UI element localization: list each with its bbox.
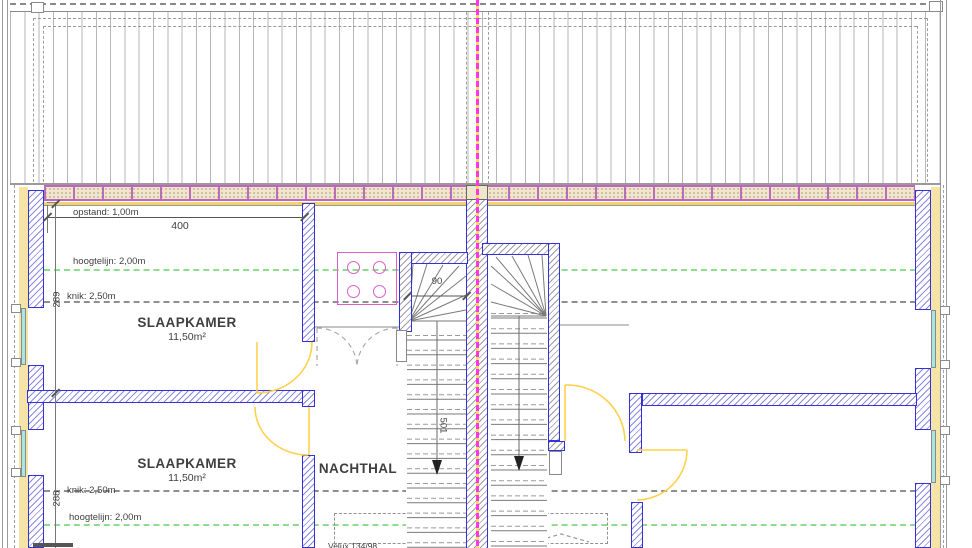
gable-edge-left-outer	[2, 0, 3, 548]
left-window-1-frame-bottom	[11, 358, 21, 367]
knik-upper-label: knik: 2,50m	[67, 291, 116, 302]
hall-wall-right-upper	[629, 393, 642, 453]
right-window-2-glazing	[931, 430, 936, 483]
left-wall-insulation	[19, 187, 28, 548]
bedroom-divider-wall-left	[27, 390, 303, 403]
hall-wall-left-upper	[302, 203, 315, 342]
right-staircase	[490, 254, 548, 548]
right-stair-wall-foot	[548, 441, 565, 451]
velux-box-left	[334, 513, 425, 544]
roof-hidden-plate-lower	[43, 26, 917, 27]
hall-wall-right-lower	[631, 502, 643, 548]
rooflight-spot-4	[373, 285, 386, 298]
hall-wall-left-lower	[302, 455, 315, 548]
roof-ridge-dashed-line	[10, 3, 936, 5]
velux-label: Velux 134/98	[328, 541, 377, 548]
bedroom-divider-wall-right	[642, 393, 917, 406]
party-wall-hidden-left	[466, 12, 467, 184]
left-wall-leaf-top	[28, 190, 44, 308]
right-stair-stringer	[549, 451, 562, 475]
right-window-1-frame-top	[940, 306, 950, 315]
bedroom1-door-swing	[257, 342, 312, 393]
dim-400-ext-line	[47, 205, 48, 233]
gable-edge-right-outer	[946, 0, 947, 548]
under-stair-door-swing-left-a	[317, 328, 357, 368]
roof-hidden-line-right-outer	[927, 18, 928, 182]
right-window-2-frame-bottom	[940, 476, 950, 485]
roof-hidden-line-left-outer	[33, 18, 34, 182]
hall-name: NACHTHAL	[315, 461, 401, 476]
right-wall-leaf-mid	[915, 368, 931, 430]
bedroom2-door-swing	[255, 407, 308, 455]
rooflight-symbol	[337, 252, 397, 305]
bottom-wall-stub	[33, 543, 73, 547]
left-staircase	[406, 263, 467, 548]
left-window-1-frame-top	[11, 304, 21, 313]
left-window-1-glazing	[21, 308, 26, 365]
floor-plan-canvas: opstand: 1,00m 400 hoogtelijn: 2,00m kni…	[0, 0, 972, 548]
right-hall-door-swing	[565, 385, 625, 441]
right-stair-wall-side	[548, 243, 560, 441]
left-window-2-frame-bottom	[11, 468, 21, 477]
roof-hidden-line-right-inner	[917, 26, 918, 182]
left-stair-winders	[409, 264, 466, 321]
velux-box-right	[516, 513, 608, 544]
rooflight-spot-3	[347, 285, 360, 298]
gable-edge-right-inner	[940, 0, 941, 548]
roof-hidden-line-left-inner	[43, 26, 44, 182]
party-wall-hidden-right	[488, 12, 489, 184]
hoogtelijn-lower-label: hoogtelijn: 2,00m	[69, 512, 141, 523]
hoogtelijn-upper-label: hoogtelijn: 2,00m	[73, 256, 145, 267]
roof-hidden-plate-upper	[33, 18, 927, 19]
opstand-label: opstand: 1,00m	[73, 207, 139, 218]
right-wall-leaf-bottom	[915, 483, 931, 548]
left-stair-direction-arrow	[432, 460, 442, 475]
bedroom2-area: 11,50m²	[116, 472, 258, 484]
left-stair-stringer	[396, 330, 407, 362]
dim-288-label: 288	[52, 487, 63, 511]
bedroom1-name: SLAAPKAMER	[116, 315, 258, 330]
right-window-2-frame-top	[940, 426, 950, 435]
right-bedroom-door-swing	[637, 450, 687, 500]
party-wall-axis-line	[476, 0, 479, 548]
right-stair-winders	[491, 255, 546, 316]
left-wall-leaf-bottom	[28, 475, 44, 548]
dim-289-label: 289	[52, 288, 63, 312]
under-stair-door-swing-left-b	[357, 328, 397, 368]
rooflight-spot-1	[347, 261, 360, 274]
stair-run-label: 501	[438, 414, 449, 438]
stair-width-label: 90	[423, 276, 451, 287]
roof-detail-box-left	[31, 2, 44, 13]
right-wall-leaf-top	[915, 190, 931, 310]
bedroom2-name: SLAAPKAMER	[116, 456, 258, 471]
bedroom1-area: 11,50m²	[116, 331, 258, 343]
left-window-2-frame-top	[11, 426, 21, 435]
knik-lower-label: knik: 2,50m	[67, 485, 116, 496]
right-window-1-frame-bottom	[940, 360, 950, 369]
right-stair-direction-arrow	[514, 456, 524, 471]
dim-400-label: 400	[150, 220, 210, 232]
rooflight-spot-2	[373, 261, 386, 274]
right-window-1-glazing	[931, 310, 936, 368]
bedroom-divider-wall-left-cap	[302, 390, 315, 407]
left-window-2-glazing	[21, 430, 26, 477]
gable-edge-left-inner	[7, 0, 8, 548]
